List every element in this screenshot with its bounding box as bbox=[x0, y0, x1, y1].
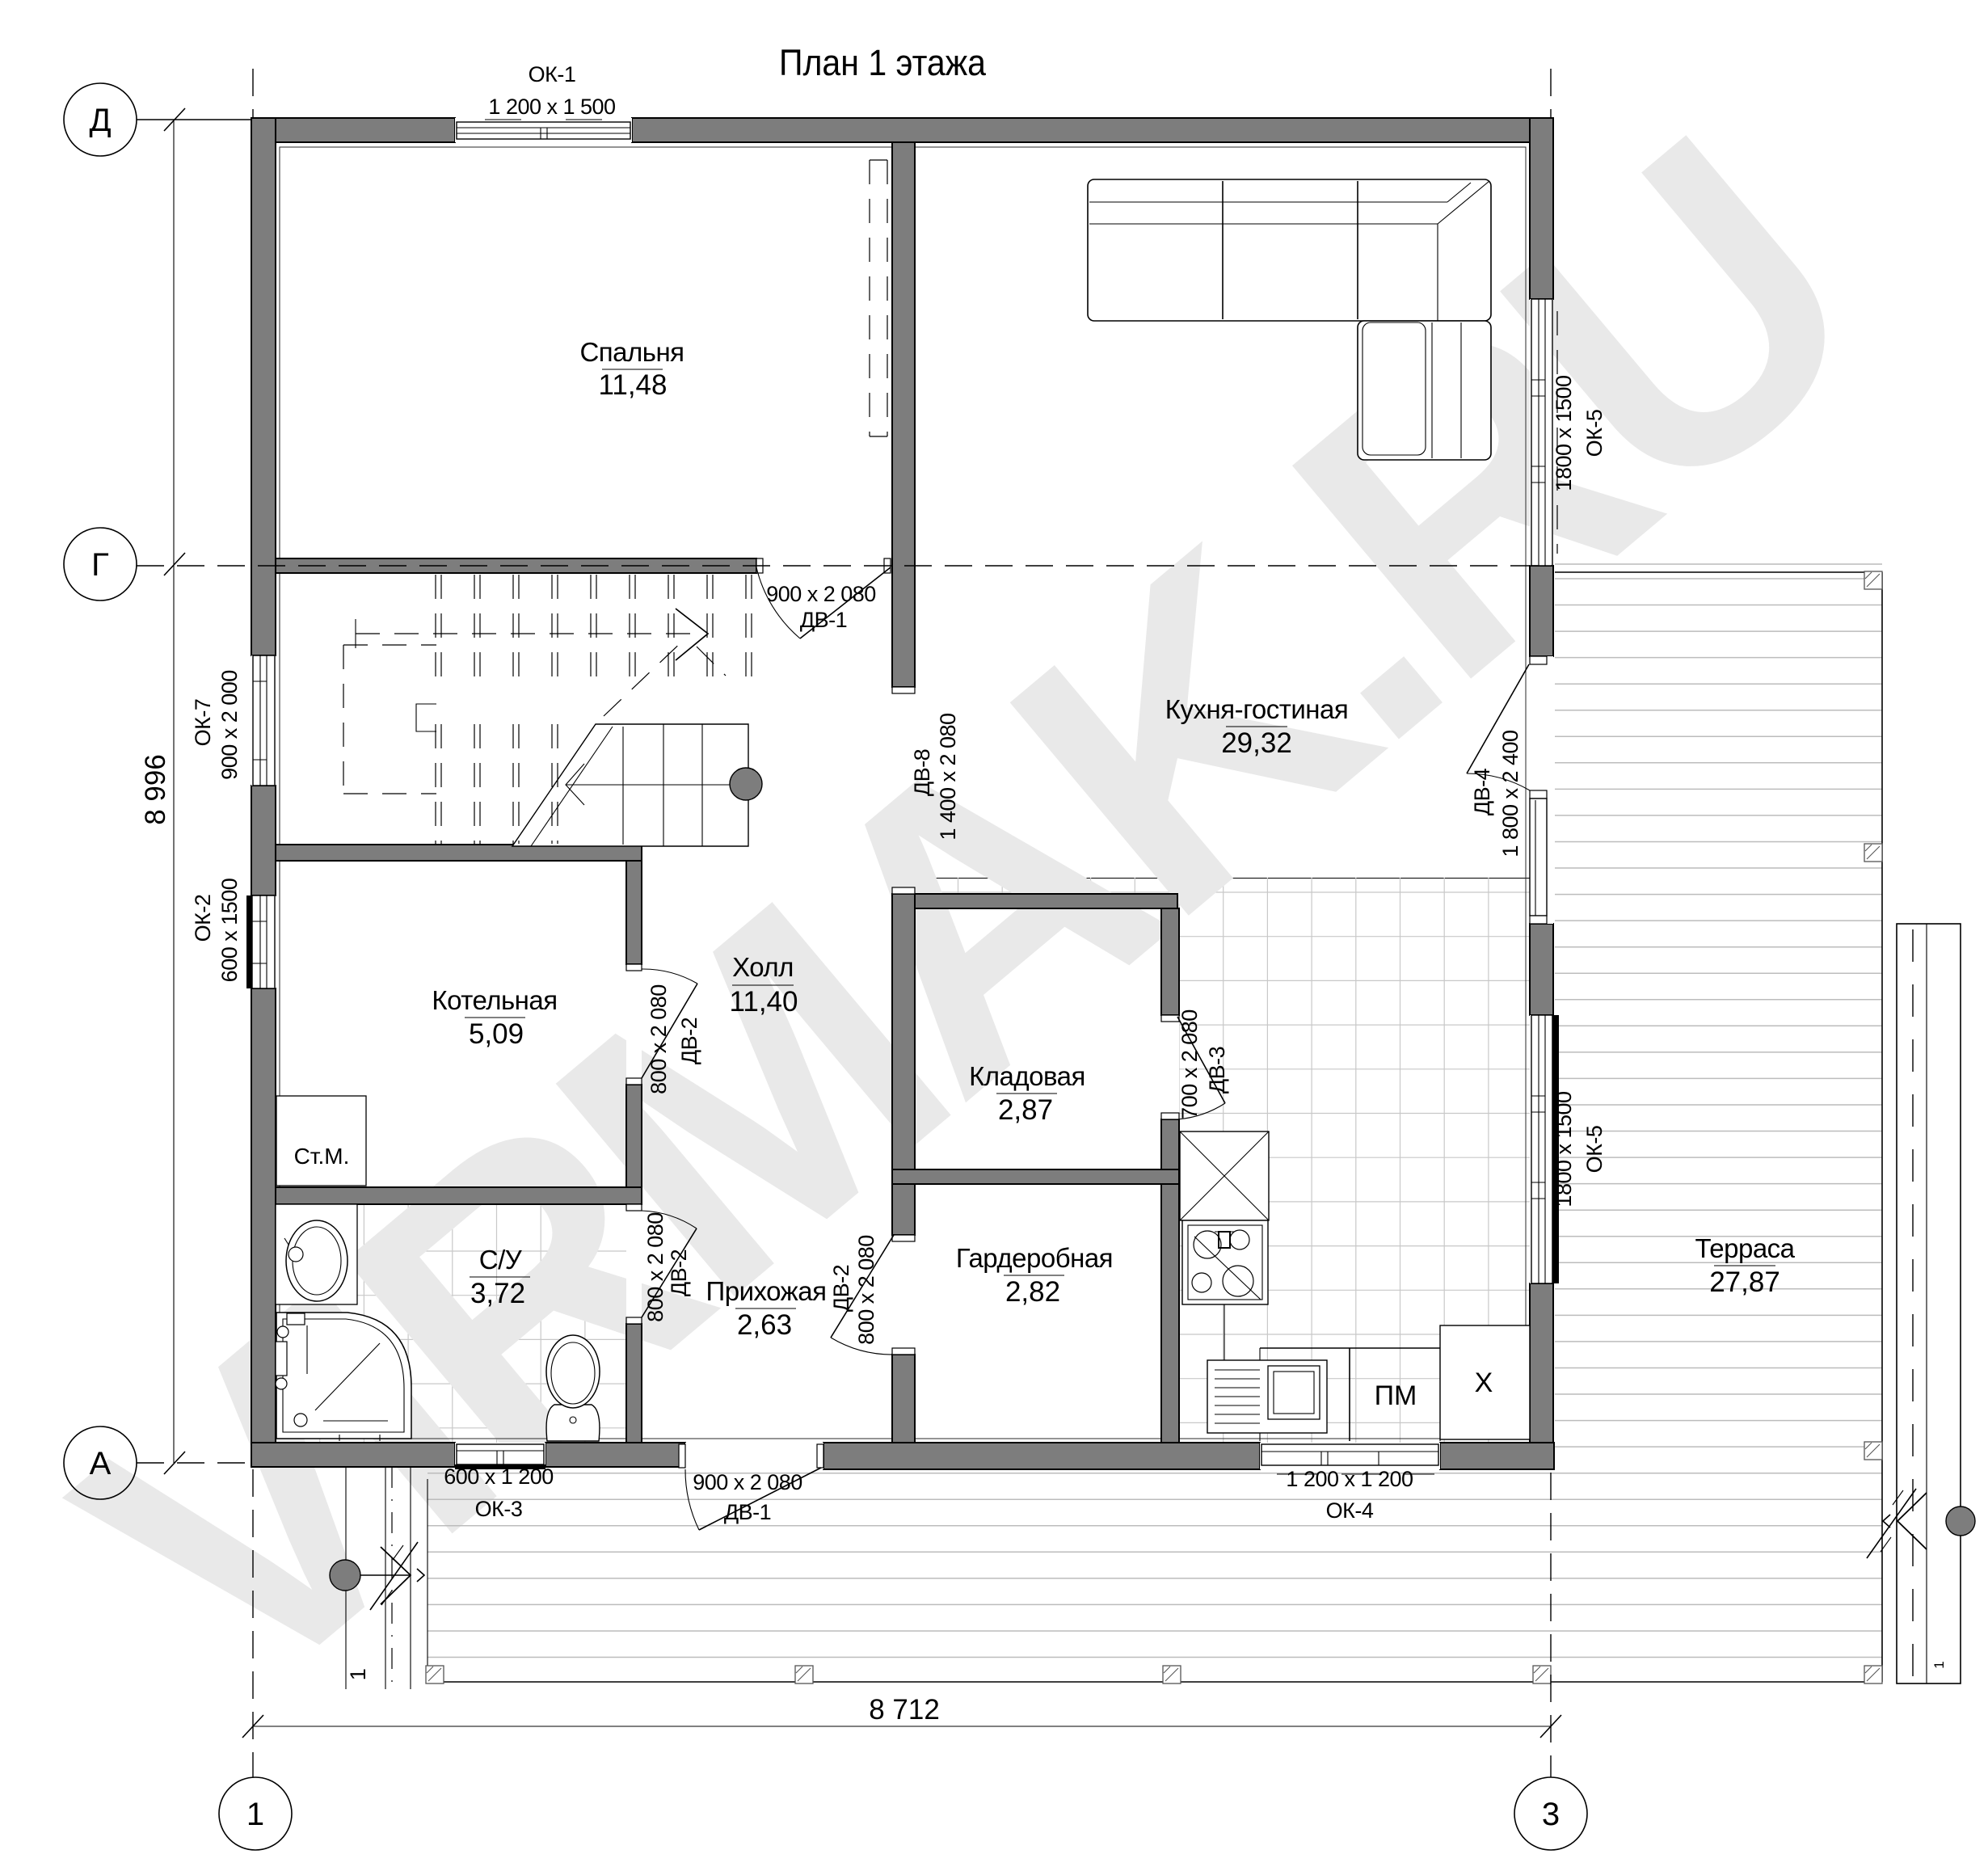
svg-text:1 400 x 2 080: 1 400 x 2 080 bbox=[936, 713, 960, 840]
svg-text:ОК-5: ОК-5 bbox=[1582, 410, 1607, 457]
svg-text:11,40: 11,40 bbox=[730, 986, 798, 1018]
svg-text:Кладовая: Кладовая bbox=[969, 1061, 1085, 1091]
svg-text:Холл: Холл bbox=[732, 952, 794, 982]
svg-text:X: X bbox=[1475, 1367, 1493, 1398]
svg-text:8 996: 8 996 bbox=[140, 754, 171, 825]
svg-text:Гардеробная: Гардеробная bbox=[956, 1243, 1113, 1273]
svg-text:С/У: С/У bbox=[479, 1245, 523, 1275]
svg-text:1800 x 1500: 1800 x 1500 bbox=[1552, 1091, 1576, 1207]
svg-text:1 200 x 1 500: 1 200 x 1 500 bbox=[488, 95, 615, 119]
svg-text:Ст.М.: Ст.М. bbox=[294, 1144, 350, 1169]
svg-text:800 x 2 080: 800 x 2 080 bbox=[643, 1212, 668, 1322]
svg-text:ДВ-8: ДВ-8 bbox=[910, 749, 934, 796]
svg-text:План 1 этажа: План 1 этажа bbox=[779, 42, 987, 83]
svg-text:Спальня: Спальня bbox=[579, 337, 684, 367]
svg-text:ОК-4: ОК-4 bbox=[1326, 1498, 1374, 1523]
svg-text:1800 x 1500: 1800 x 1500 bbox=[1552, 375, 1576, 491]
svg-text:800 x 2 080: 800 x 2 080 bbox=[854, 1235, 878, 1345]
svg-text:ОК-2: ОК-2 bbox=[191, 895, 215, 942]
svg-text:3,72: 3,72 bbox=[470, 1278, 525, 1309]
svg-text:27,87: 27,87 bbox=[1709, 1266, 1780, 1298]
svg-text:3: 3 bbox=[1542, 1797, 1560, 1832]
svg-text:ДВ-1: ДВ-1 bbox=[724, 1500, 771, 1524]
svg-text:900 x 2 080: 900 x 2 080 bbox=[693, 1470, 802, 1494]
svg-text:2,87: 2,87 bbox=[998, 1094, 1053, 1126]
svg-text:800 x 2 080: 800 x 2 080 bbox=[647, 984, 671, 1094]
svg-text:ДВ-1: ДВ-1 bbox=[800, 608, 847, 632]
svg-text:ПМ: ПМ bbox=[1375, 1380, 1417, 1411]
svg-text:900 x 2 000: 900 x 2 000 bbox=[217, 670, 242, 780]
svg-text:ОК-7: ОК-7 bbox=[191, 699, 215, 747]
svg-text:Прихожая: Прихожая bbox=[706, 1276, 827, 1306]
svg-text:5,09: 5,09 bbox=[469, 1018, 524, 1050]
svg-text:1 200 x 1 200: 1 200 x 1 200 bbox=[1286, 1467, 1413, 1491]
svg-text:700 x 2 080: 700 x 2 080 bbox=[1177, 1009, 1202, 1119]
svg-text:ДВ-2: ДВ-2 bbox=[667, 1249, 691, 1296]
svg-text:900 x 2 080: 900 x 2 080 bbox=[766, 582, 876, 606]
svg-text:8 712: 8 712 bbox=[869, 1694, 940, 1726]
svg-text:1: 1 bbox=[246, 1797, 264, 1832]
svg-text:11,48: 11,48 bbox=[599, 369, 668, 401]
svg-text:ДВ-4: ДВ-4 bbox=[1470, 768, 1494, 815]
svg-text:ДВ-3: ДВ-3 bbox=[1205, 1047, 1229, 1094]
svg-text:Г: Г bbox=[91, 547, 109, 583]
svg-text:Д: Д bbox=[89, 103, 111, 138]
svg-text:29,32: 29,32 bbox=[1221, 727, 1292, 759]
svg-text:Кухня-гостиная: Кухня-гостиная bbox=[1165, 694, 1348, 724]
svg-text:1: 1 bbox=[346, 1669, 370, 1681]
svg-text:Терраса: Терраса bbox=[1695, 1233, 1795, 1263]
svg-text:600 x 1 200: 600 x 1 200 bbox=[444, 1464, 554, 1489]
svg-text:600 x 1500: 600 x 1500 bbox=[217, 879, 242, 983]
svg-text:ОК-5: ОК-5 bbox=[1582, 1126, 1607, 1174]
svg-text:ДВ-2: ДВ-2 bbox=[677, 1018, 701, 1064]
svg-text:ОК-1: ОК-1 bbox=[529, 62, 576, 86]
svg-text:А: А bbox=[90, 1446, 112, 1481]
svg-text:2,82: 2,82 bbox=[1005, 1276, 1060, 1308]
svg-text:2,63: 2,63 bbox=[737, 1309, 792, 1341]
svg-text:ДВ-2: ДВ-2 bbox=[829, 1265, 853, 1312]
svg-text:ОК-3: ОК-3 bbox=[475, 1497, 523, 1521]
svg-text:1 800 x 2 400: 1 800 x 2 400 bbox=[1498, 730, 1523, 857]
svg-text:Котельная: Котельная bbox=[432, 985, 557, 1015]
svg-text:1: 1 bbox=[1931, 1661, 1947, 1668]
